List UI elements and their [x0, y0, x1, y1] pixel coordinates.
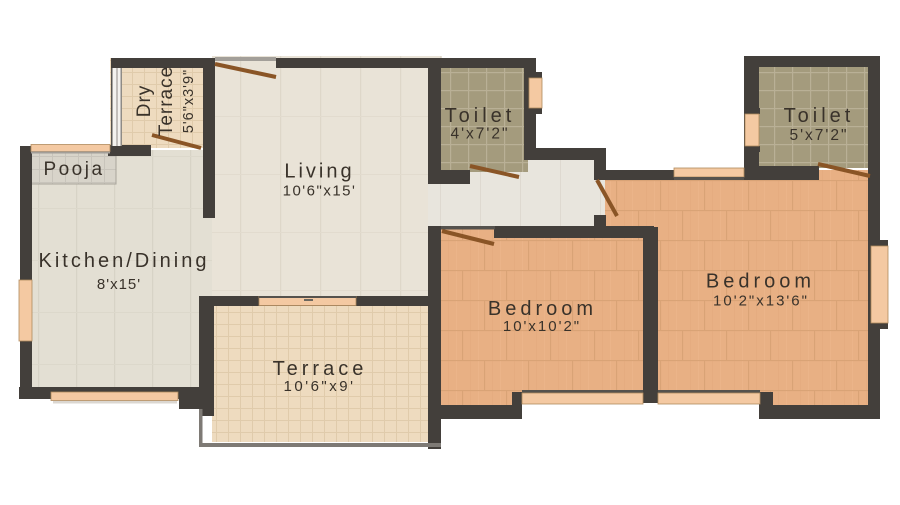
svg-text:Living: Living: [284, 161, 354, 183]
svg-text:4'x7'2": 4'x7'2": [450, 126, 509, 143]
svg-text:8'x15': 8'x15': [97, 276, 141, 293]
svg-text:10'6"x15': 10'6"x15': [283, 183, 357, 200]
svg-text:Bedroom: Bedroom: [488, 298, 597, 320]
svg-text:Toilet: Toilet: [445, 105, 516, 127]
svg-text:Pooja: Pooja: [43, 159, 104, 180]
svg-text:10'2"x13'6": 10'2"x13'6": [713, 293, 809, 310]
svg-text:10'x10'2": 10'x10'2": [503, 318, 581, 335]
svg-text:Dry: Dry: [134, 85, 155, 118]
svg-text:5'6"x3'9": 5'6"x3'9": [181, 69, 197, 133]
svg-text:Kitchen/Dining: Kitchen/Dining: [39, 250, 210, 272]
svg-text:10'6"x9': 10'6"x9': [284, 378, 356, 395]
svg-text:Terrace: Terrace: [156, 66, 177, 136]
svg-text:Toilet: Toilet: [784, 105, 855, 127]
svg-text:Bedroom: Bedroom: [706, 271, 815, 293]
svg-text:Terrace: Terrace: [273, 358, 368, 380]
svg-text:5'x7'2": 5'x7'2": [789, 127, 848, 144]
